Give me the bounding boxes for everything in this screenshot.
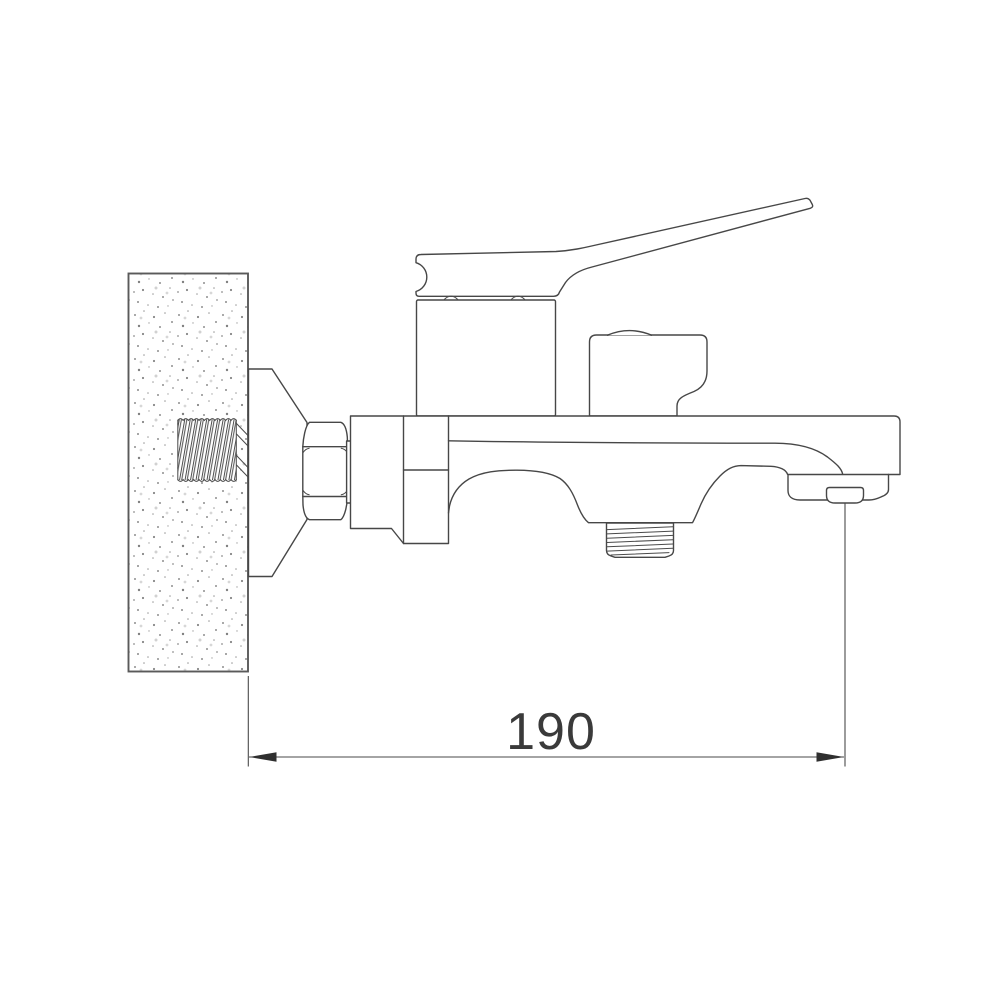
- dimension-arrow-left: [249, 752, 277, 762]
- diverter-knob-arc: [608, 331, 652, 336]
- hex-nut: [303, 422, 348, 519]
- shower-outlet-thread: [607, 523, 674, 557]
- dimension-arrow-right: [817, 752, 845, 762]
- aerator: [827, 488, 864, 504]
- lever-handle: [416, 198, 813, 296]
- dimension-label: 190: [506, 703, 596, 761]
- cartridge-column: [417, 300, 556, 416]
- escutcheon-cone: [249, 369, 308, 577]
- dimension-annotation: 190: [248, 504, 845, 767]
- diverter-housing: [590, 331, 708, 416]
- faucet-technical-drawing: 190: [0, 0, 1000, 1000]
- technical-drawing-canvas: 190: [0, 0, 1000, 1000]
